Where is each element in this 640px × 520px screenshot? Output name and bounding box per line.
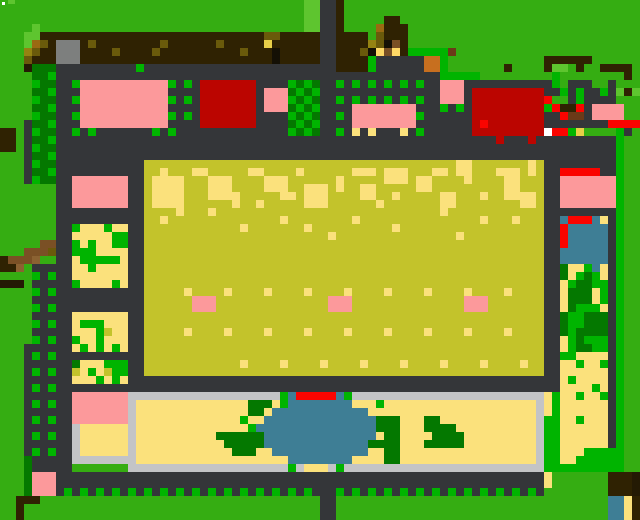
world-map-canvas[interactable] xyxy=(0,0,640,520)
game-viewport xyxy=(0,0,640,520)
